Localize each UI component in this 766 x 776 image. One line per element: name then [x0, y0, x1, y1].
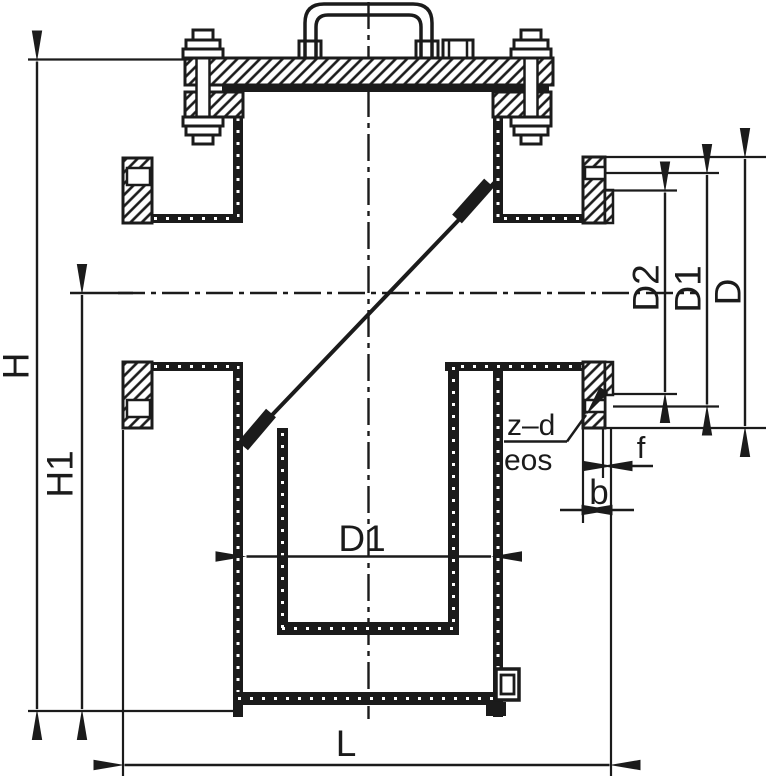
bolt-hole	[585, 167, 605, 179]
bolt-hole	[127, 400, 150, 417]
dim-label-H1: H1	[40, 450, 81, 497]
raised-face-lower	[605, 362, 613, 395]
screen-mount-lower	[243, 413, 271, 446]
dim-label-L: L	[336, 723, 357, 764]
dim-label-H: H	[0, 353, 37, 380]
screen-mount-upper	[457, 183, 489, 219]
drawing-canvas: H H1 L D2 D1 D D1 f b	[0, 0, 766, 776]
bolt-hole	[585, 400, 605, 412]
dim-face-to-face	[123, 428, 611, 776]
dim-label-D1-flange: D1	[668, 265, 709, 312]
neck-flange-lug-left	[185, 92, 243, 117]
dim-label-D: D	[708, 279, 749, 306]
dim-label-b: b	[589, 473, 608, 512]
dim-label-D2: D2	[626, 264, 667, 311]
bolt-hole	[127, 168, 150, 185]
neck-flange-lug-right	[493, 92, 551, 117]
bolt-hole-callout: z–d eos	[504, 409, 586, 477]
callout-label-eos: eos	[504, 444, 552, 477]
vent-plug	[443, 40, 473, 58]
dim-label-f: f	[637, 430, 646, 465]
strainer-sectional-drawing: H H1 L D2 D1 D D1 f b	[0, 0, 766, 776]
raised-face-upper	[605, 190, 613, 223]
dim-label-D1-body: D1	[338, 518, 385, 559]
cover-plate	[185, 58, 553, 85]
callout-label-zd: z–d	[507, 409, 555, 442]
